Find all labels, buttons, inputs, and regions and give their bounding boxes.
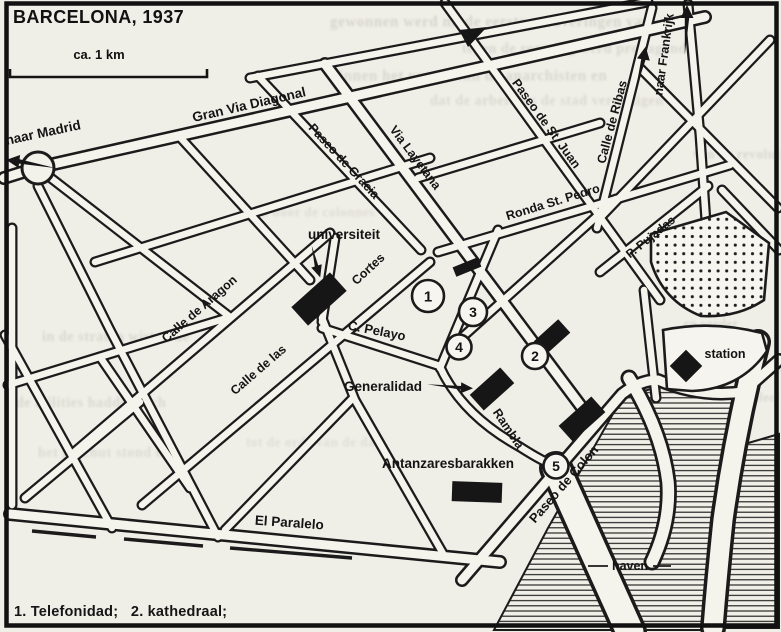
marker-3-number: 3 [469, 304, 477, 320]
building-generalidad [470, 367, 515, 410]
scale-bar [10, 69, 207, 77]
label-universiteit: universiteit [308, 227, 381, 242]
label-antanzaresbarakken: Antanzaresbarakken [382, 456, 514, 471]
label-haven: haven [612, 559, 648, 573]
marker-2-number: 2 [531, 348, 539, 364]
scale-label: ca. 1 km [58, 47, 140, 62]
street-label-cortes: Cortes [349, 250, 388, 287]
marker-4-hotel-falcon: 4 [447, 335, 472, 360]
barcelona-map-canvas: 1 2 3 4 5 [0, 0, 781, 632]
street-label-el-paralelo: El Paralelo [254, 513, 324, 533]
marker-1-telefonidad: 1 [412, 280, 444, 312]
map-title: BARCELONA, 1937 [13, 7, 184, 28]
marker-2-kathedraal: 2 [522, 343, 548, 369]
marker-3-hotel-colon: 3 [459, 298, 487, 326]
street-label-paseo-de-st-juan: Paseo de St. Juan [509, 76, 583, 171]
marker-5-number: 5 [552, 458, 560, 474]
marker-4-number: 4 [455, 339, 463, 355]
building-barakken [452, 481, 503, 503]
legend-line-1: 1. Telefonidad; 2. kathedraal; [14, 599, 240, 626]
map-legend: 1. Telefonidad; 2. kathedraal; 3. hotel … [14, 545, 240, 632]
marker-1-number: 1 [424, 289, 432, 306]
label-generalidad: Generalidad [344, 379, 422, 394]
roundabout-plaza [22, 152, 54, 184]
label-naar-madrid: naar Madrid [4, 117, 82, 148]
label-station: station [705, 347, 746, 361]
map-page: gewonnen werd nu de eerste veroveringen … [0, 0, 781, 632]
